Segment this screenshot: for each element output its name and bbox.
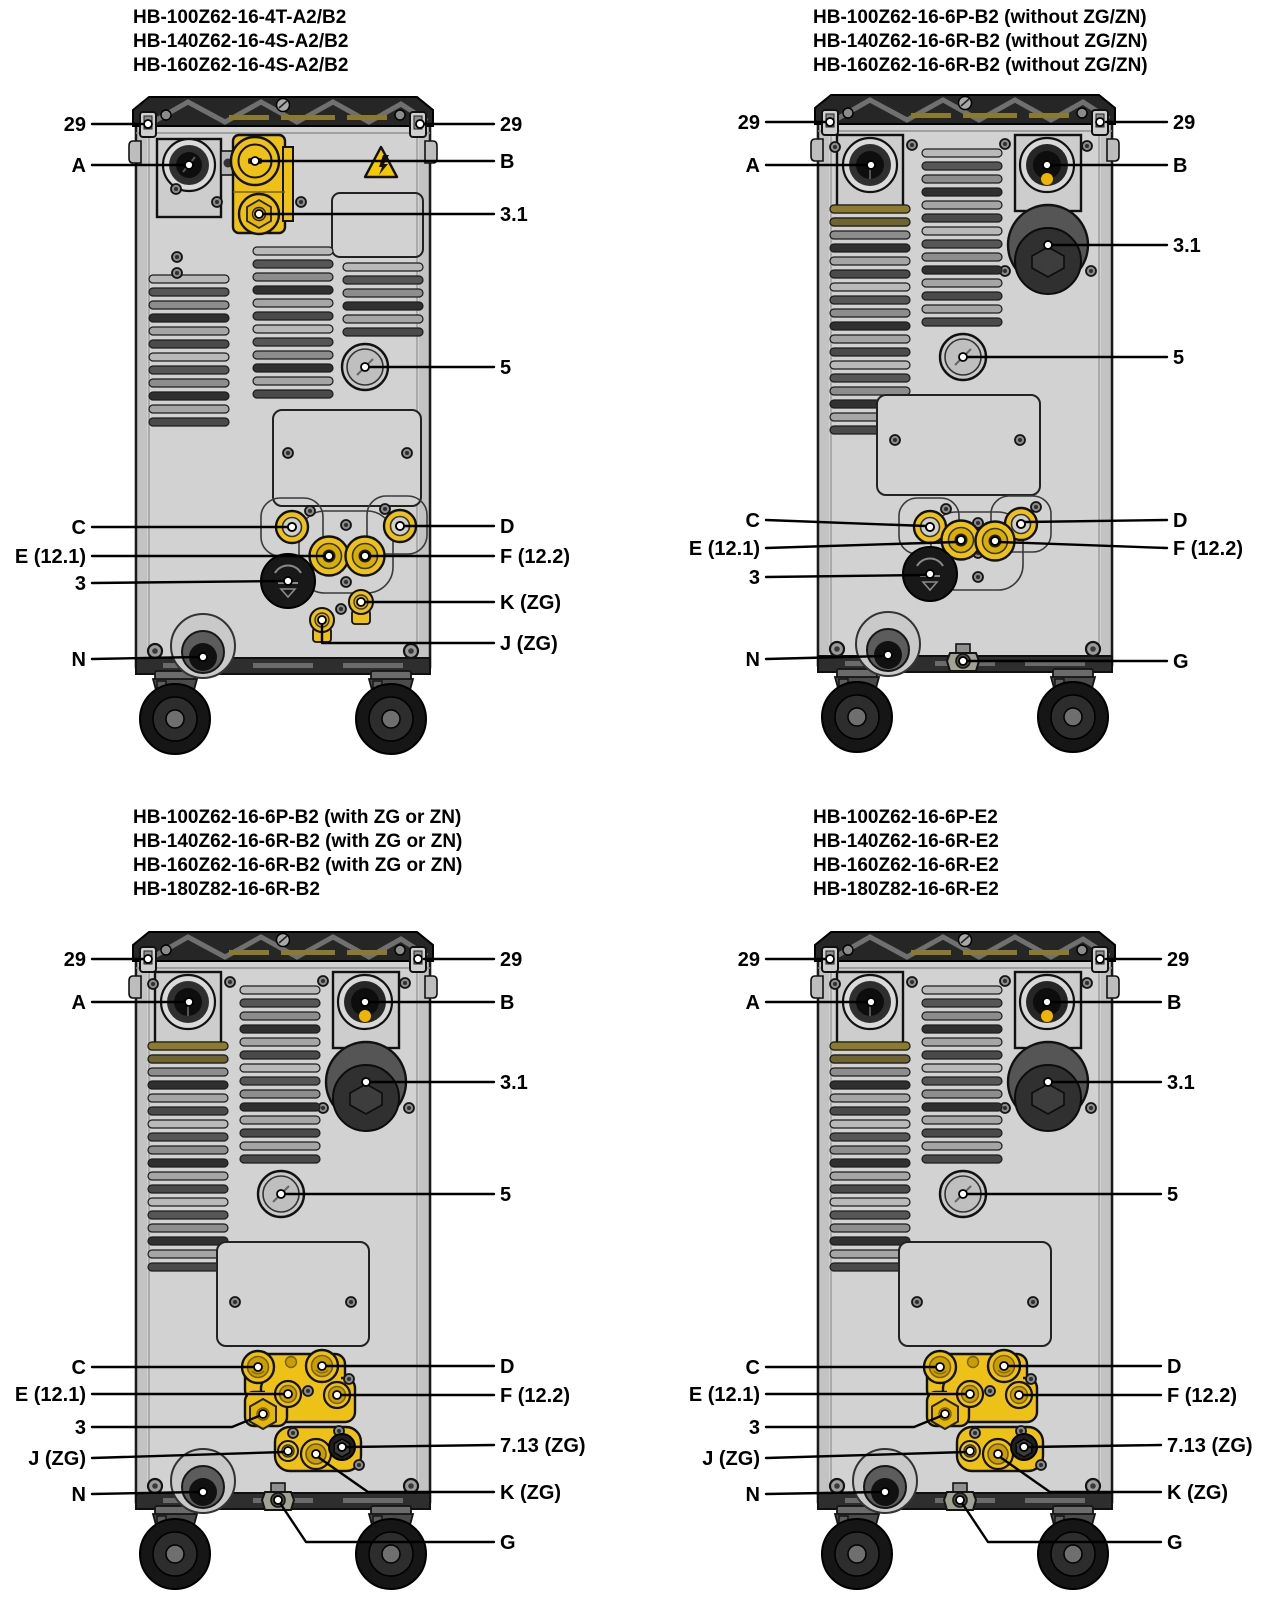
svg-text:5: 5 [500, 1184, 511, 1206]
svg-text:K (ZG): K (ZG) [1167, 1482, 1228, 1504]
svg-text:C: C [72, 517, 86, 539]
svg-text:K (ZG): K (ZG) [500, 592, 561, 614]
svg-text:A: A [72, 155, 86, 177]
model-title-block: HB-100Z62-16-4T-A2/B2 HB-140Z62-16-4S-A2… [133, 6, 348, 78]
diagram-page: HB-100Z62-16-4T-A2/B2 HB-140Z62-16-4S-A2… [0, 0, 1280, 1600]
svg-text:29: 29 [1167, 949, 1189, 971]
model-number: HB-140Z62-16-6R-E2 [813, 830, 999, 854]
model-number: HB-160Z62-16-6R-B2 (without ZG/ZN) [813, 54, 1148, 78]
svg-text:J (ZG): J (ZG) [702, 1448, 760, 1470]
svg-text:29: 29 [64, 949, 86, 971]
model-number: HB-140Z62-16-6R-B2 (with ZG or ZN) [133, 830, 462, 854]
svg-text:J (ZG): J (ZG) [500, 633, 558, 655]
svg-text:N: N [746, 1484, 760, 1506]
svg-text:3.1: 3.1 [1173, 235, 1201, 257]
svg-text:29: 29 [738, 949, 760, 971]
svg-text:F (12.2): F (12.2) [1173, 538, 1243, 560]
model-number: HB-180Z82-16-6R-B2 [133, 878, 462, 902]
panel-variant-4t-4s: HB-100Z62-16-4T-A2/B2 HB-140Z62-16-4S-A2… [0, 0, 640, 800]
svg-text:D: D [1167, 1356, 1181, 1378]
svg-text:5: 5 [500, 357, 511, 379]
machine-rear-view [811, 932, 1119, 1589]
svg-text:B: B [1173, 155, 1187, 177]
svg-text:3.1: 3.1 [500, 1072, 528, 1094]
rear-view-figure: 29 29 A B 3.1 5 C D E (12.1) F (12.2) 3 … [640, 800, 1280, 1600]
svg-text:N: N [746, 649, 760, 671]
model-number: HB-160Z62-16-6R-E2 [813, 854, 999, 878]
svg-text:A: A [746, 992, 760, 1014]
model-title-block: HB-100Z62-16-6P-B2 (with ZG or ZN) HB-14… [133, 806, 462, 902]
svg-text:3.1: 3.1 [1167, 1072, 1195, 1094]
svg-text:G: G [1173, 651, 1189, 673]
svg-text:5: 5 [1173, 347, 1184, 369]
svg-text:29: 29 [64, 114, 86, 136]
svg-text:C: C [746, 510, 760, 532]
svg-text:3: 3 [749, 1417, 760, 1439]
model-number: HB-100Z62-16-4T-A2/B2 [133, 6, 348, 30]
svg-text:K (ZG): K (ZG) [500, 1482, 561, 1504]
model-number: HB-140Z62-16-6R-B2 (without ZG/ZN) [813, 30, 1148, 54]
svg-text:B: B [500, 151, 514, 173]
svg-text:C: C [746, 1357, 760, 1379]
model-number: HB-180Z82-16-6R-E2 [813, 878, 999, 902]
panel-variant-6p-6r-e2: HB-100Z62-16-6P-E2 HB-140Z62-16-6R-E2 HB… [640, 800, 1280, 1600]
svg-text:G: G [500, 1532, 516, 1554]
machine-rear-view [129, 97, 437, 754]
svg-text:7.13 (ZG): 7.13 (ZG) [1167, 1435, 1253, 1457]
svg-text:C: C [72, 1357, 86, 1379]
svg-text:3: 3 [75, 573, 86, 595]
svg-text:F (12.2): F (12.2) [1167, 1385, 1237, 1407]
svg-text:E (12.1): E (12.1) [15, 546, 86, 568]
panel-variant-6p-6r-with-zg: HB-100Z62-16-6P-B2 (with ZG or ZN) HB-14… [0, 800, 640, 1600]
model-number: HB-100Z62-16-6P-B2 (with ZG or ZN) [133, 806, 462, 830]
model-number: HB-100Z62-16-6P-B2 (without ZG/ZN) [813, 6, 1148, 30]
svg-text:E (12.1): E (12.1) [689, 538, 760, 560]
svg-text:29: 29 [500, 949, 522, 971]
svg-text:G: G [1167, 1532, 1183, 1554]
panel-variant-6p-6r-without-zg: HB-100Z62-16-6P-B2 (without ZG/ZN) HB-14… [640, 0, 1280, 800]
svg-text:D: D [500, 516, 514, 538]
svg-text:3: 3 [749, 567, 760, 589]
svg-text:3.1: 3.1 [500, 204, 528, 226]
svg-text:29: 29 [500, 114, 522, 136]
svg-text:29: 29 [738, 112, 760, 134]
rear-view-figure: 29 29 A B 3.1 5 C D E (12.1) F (12.2) 3 … [0, 0, 640, 800]
model-number: HB-160Z62-16-4S-A2/B2 [133, 54, 348, 78]
svg-text:E (12.1): E (12.1) [689, 1384, 760, 1406]
rear-view-figure: 29 29 A B 3.1 5 C D E (12.1) F (12.2) 3 … [0, 800, 640, 1600]
machine-rear-view [811, 95, 1119, 752]
svg-text:7.13 (ZG): 7.13 (ZG) [500, 1435, 586, 1457]
svg-text:F (12.2): F (12.2) [500, 546, 570, 568]
svg-text:N: N [72, 649, 86, 671]
model-title-block: HB-100Z62-16-6P-E2 HB-140Z62-16-6R-E2 HB… [813, 806, 999, 902]
svg-text:5: 5 [1167, 1184, 1178, 1206]
svg-text:J (ZG): J (ZG) [28, 1448, 86, 1470]
svg-text:N: N [72, 1484, 86, 1506]
model-number: HB-140Z62-16-4S-A2/B2 [133, 30, 348, 54]
svg-text:D: D [1173, 510, 1187, 532]
model-title-block: HB-100Z62-16-6P-B2 (without ZG/ZN) HB-14… [813, 6, 1148, 78]
svg-text:A: A [746, 155, 760, 177]
svg-text:B: B [1167, 992, 1181, 1014]
svg-text:E (12.1): E (12.1) [15, 1384, 86, 1406]
model-number: HB-160Z62-16-6R-B2 (with ZG or ZN) [133, 854, 462, 878]
svg-text:3: 3 [75, 1417, 86, 1439]
svg-text:B: B [500, 992, 514, 1014]
rear-view-figure: 29 29 A B 3.1 5 C D E (12.1) F (12.2) 3 … [640, 0, 1280, 800]
model-number: HB-100Z62-16-6P-E2 [813, 806, 999, 830]
machine-rear-view [129, 932, 437, 1589]
svg-text:F (12.2): F (12.2) [500, 1385, 570, 1407]
svg-text:29: 29 [1173, 112, 1195, 134]
svg-text:D: D [500, 1356, 514, 1378]
svg-text:A: A [72, 992, 86, 1014]
